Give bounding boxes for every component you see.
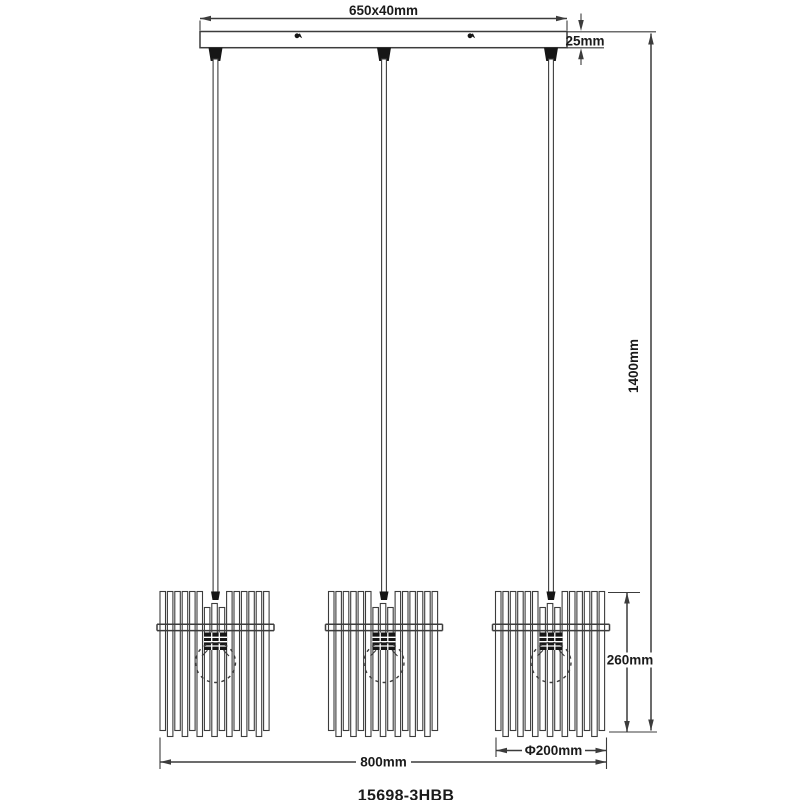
- shade-slat: [182, 592, 188, 737]
- shade-slat: [336, 592, 342, 737]
- overall-width-label: 800mm: [360, 755, 407, 770]
- arrow-down-icon: [624, 721, 630, 732]
- pendant-2: [326, 48, 443, 737]
- shade-slat: [503, 592, 509, 737]
- shade-slat: [380, 604, 386, 737]
- cord-stopper: [380, 592, 389, 601]
- dimension-canopy-height: 25mm: [565, 14, 656, 66]
- shade-slat: [241, 592, 247, 737]
- lamp-shade: [326, 592, 443, 737]
- shade-slat: [547, 604, 553, 737]
- canopy-size-label: 650x40mm: [349, 3, 418, 18]
- shade-slat: [395, 592, 401, 737]
- shade-slat: [234, 592, 240, 731]
- shade-slat: [167, 592, 173, 737]
- shade-slat: [533, 592, 539, 737]
- shade-slat: [525, 592, 531, 731]
- pendant-lights: [157, 48, 610, 737]
- canopy-height-label: 25mm: [565, 34, 604, 49]
- shade-slat: [410, 592, 416, 737]
- shade-slat: [197, 592, 203, 737]
- lamp-shade: [493, 592, 610, 737]
- arrow-up-icon: [624, 593, 630, 604]
- arrow-right-icon: [596, 748, 607, 754]
- dimension-drop-height: 1400mm: [609, 34, 657, 733]
- shade-slat: [227, 592, 233, 737]
- dimension-shade-height: 260mm: [606, 593, 654, 733]
- pendant-3: [493, 48, 610, 737]
- cord-stopper: [211, 592, 220, 601]
- dimension-canopy-size: 650x40mm: [200, 3, 567, 31]
- shade-slat: [329, 592, 335, 731]
- shade-slat: [212, 604, 218, 737]
- model-number: 15698-3HBB: [358, 788, 454, 800]
- shade-slat: [425, 592, 431, 737]
- pendant-lamp-technical-drawing: 650x40mm 25mm 1400mm 260mm Φ200mm: [0, 0, 800, 800]
- extension-lines: [200, 21, 567, 31]
- shade-slat: [562, 592, 568, 737]
- shade-slat: [555, 608, 561, 731]
- shade-slat: [584, 592, 590, 731]
- shade-slat: [190, 592, 196, 731]
- drop-height-label: 1400mm: [626, 339, 641, 393]
- arrow-right-icon: [596, 759, 607, 765]
- arrow-right-icon: [556, 16, 567, 22]
- shade-slat: [366, 592, 372, 737]
- shade-slat: [256, 592, 262, 737]
- suspension-cord: [549, 59, 554, 592]
- arrow-left-icon: [496, 748, 507, 754]
- shade-slat: [373, 608, 379, 731]
- ceiling-plate-body: [200, 32, 567, 48]
- shade-slat: [160, 592, 166, 731]
- shade-diameter-label: Φ200mm: [525, 743, 583, 758]
- arrow-down-icon: [578, 20, 584, 31]
- shade-slat: [175, 592, 181, 731]
- shade-height-label: 260mm: [607, 653, 654, 668]
- pendant-1: [157, 48, 274, 737]
- arrow-up-icon: [648, 34, 654, 45]
- shade-slat: [496, 592, 502, 731]
- shade-slat: [204, 608, 210, 731]
- shade-slat: [264, 592, 270, 731]
- lamp-shade: [157, 592, 274, 737]
- suspension-cord: [382, 59, 387, 592]
- shade-slat: [510, 592, 516, 731]
- arrow-left-icon: [200, 16, 211, 22]
- shade-slat: [577, 592, 583, 737]
- ceiling-plate: [200, 32, 567, 48]
- shade-slat: [518, 592, 524, 737]
- shade-slat: [599, 592, 605, 731]
- shade-slat: [249, 592, 255, 731]
- shade-slat: [388, 608, 394, 731]
- shade-slat: [432, 592, 438, 731]
- shade-slat: [403, 592, 409, 731]
- cord-stopper: [547, 592, 556, 601]
- shade-slat: [592, 592, 598, 737]
- shade-slat: [343, 592, 349, 731]
- arrow-left-icon: [160, 759, 171, 765]
- shade-slat: [540, 608, 546, 731]
- arrow-up-icon: [578, 48, 584, 59]
- shade-slat: [219, 608, 225, 731]
- shade-slat: [351, 592, 357, 737]
- shade-slat: [570, 592, 576, 731]
- shade-slat: [417, 592, 423, 731]
- shade-slat: [358, 592, 364, 731]
- arrow-down-icon: [648, 720, 654, 731]
- technical-drawing-page: 650x40mm 25mm 1400mm 260mm Φ200mm: [0, 0, 800, 800]
- suspension-cord: [213, 59, 218, 592]
- dimension-shade-diameter: Φ200mm: [496, 738, 607, 770]
